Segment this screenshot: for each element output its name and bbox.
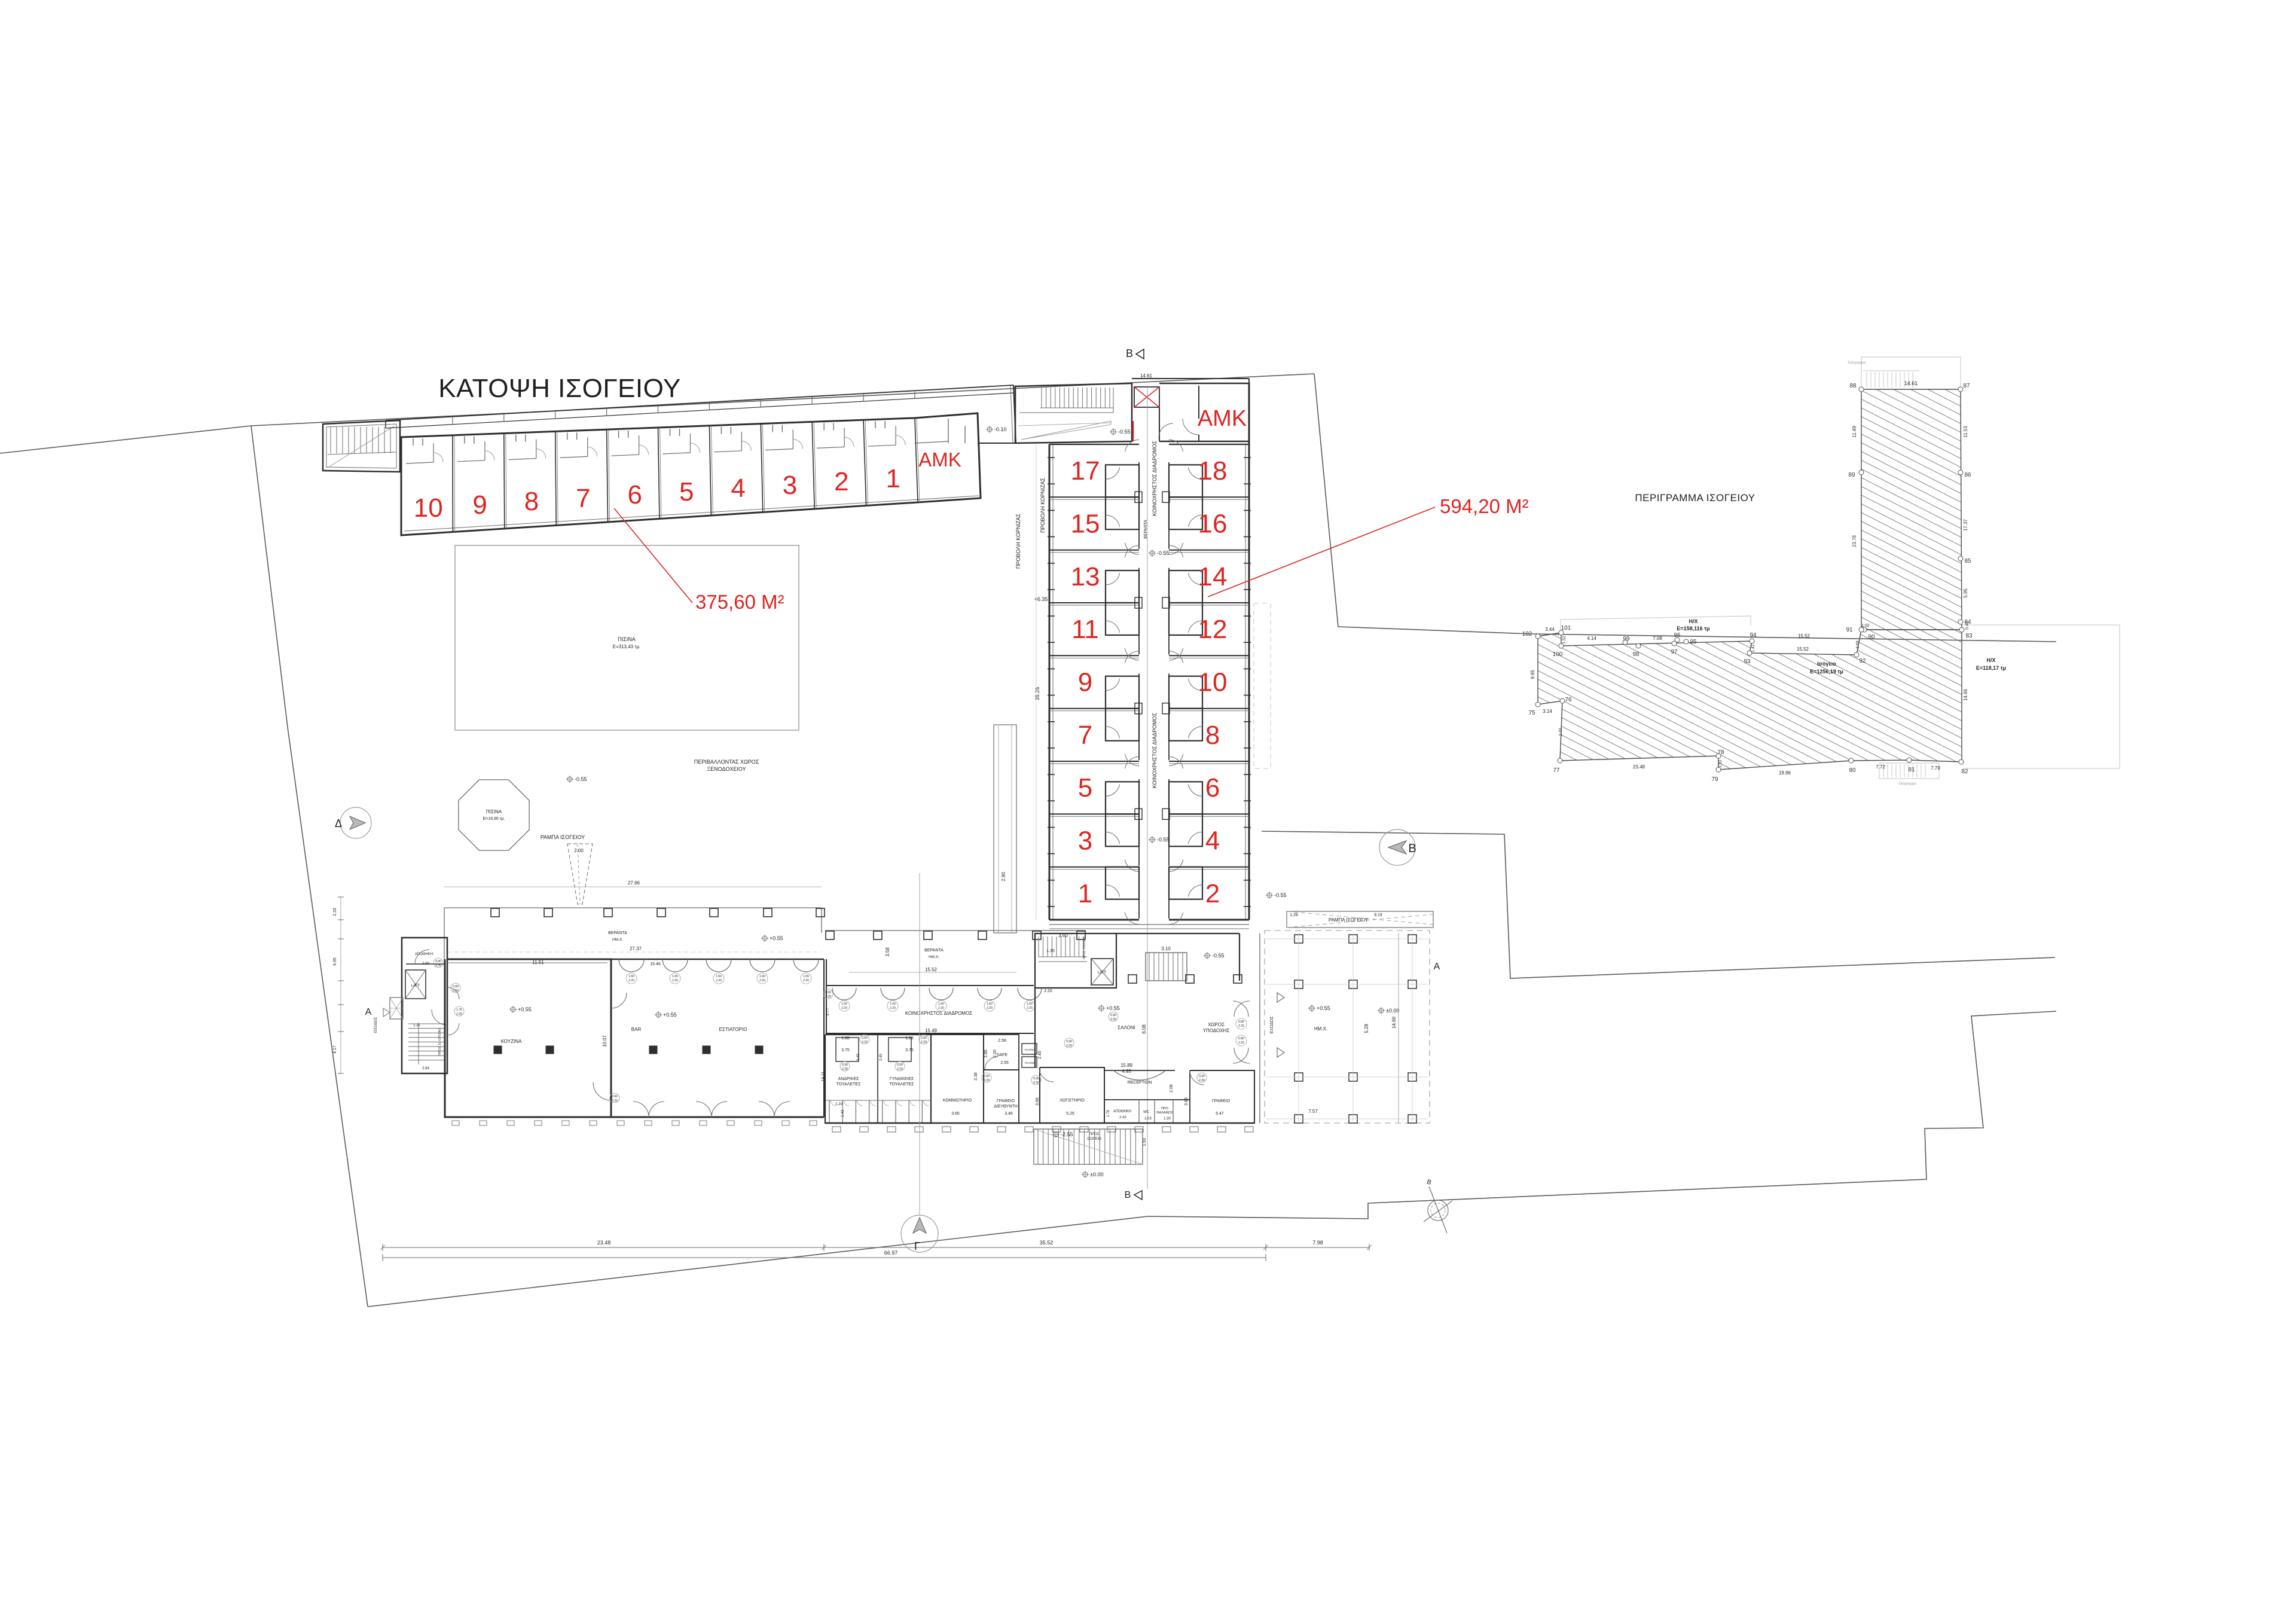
svg-text:2.20: 2.20 [842,1067,848,1071]
svg-text:Ε=19,95 τμ.: Ε=19,95 τμ. [483,817,505,821]
svg-text:3.10: 3.10 [1161,946,1171,951]
svg-text:27.66: 27.66 [628,880,640,886]
svg-text:2.20: 2.20 [993,1050,997,1058]
svg-text:8: 8 [1205,721,1220,750]
svg-text:ΗΜ.Χ.: ΗΜ.Χ. [612,938,623,942]
svg-text:35.26: 35.26 [1034,687,1040,701]
svg-text:2.20: 2.20 [1066,1044,1072,1048]
svg-text:ΚΟΜΜΩΤΗΡΙΟ: ΚΟΜΜΩΤΗΡΙΟ [943,1099,972,1103]
svg-text:102: 102 [1522,631,1532,637]
svg-text:1.41: 1.41 [1751,644,1755,652]
svg-text:-0.55: -0.55 [575,776,587,782]
svg-text:1.52: 1.52 [1562,636,1567,644]
svg-text:15.89: 15.89 [1120,1063,1133,1068]
svg-text:2.55: 2.55 [1000,1061,1009,1065]
svg-text:ΙΣΟΓΕΙΟ: ΙΣΟΓΕΙΟ [1087,1137,1101,1141]
svg-text:Ε=158,116 τμ: Ε=158,116 τμ [1677,626,1709,631]
svg-text:1.93: 1.93 [1143,1138,1147,1146]
svg-text:10.07: 10.07 [602,1035,607,1047]
svg-text:Ισόγειο: Ισόγειο [1817,661,1836,667]
svg-text:Η/Χ: Η/Χ [1689,618,1697,624]
svg-text:2.20: 2.20 [890,1006,896,1010]
svg-text:80: 80 [1849,767,1856,774]
svg-text:1.60: 1.60 [938,1002,944,1006]
svg-text:16: 16 [1198,510,1228,539]
svg-text:11.53: 11.53 [1963,426,1968,438]
svg-text:3.75: 3.75 [841,1048,850,1052]
svg-text:0.90: 0.90 [1199,1075,1205,1078]
svg-text:15.49: 15.49 [925,1028,938,1033]
svg-text:ΤΗΛ/ΝΟ: ΤΗΛ/ΝΟ [1024,1048,1035,1051]
svg-text:2.08: 2.08 [1170,1084,1174,1093]
svg-text:92: 92 [1859,658,1866,664]
svg-text:2.20: 2.20 [456,1012,462,1016]
svg-text:Σκέγραμμα: Σκέγραμμα [1898,782,1916,786]
svg-text:12: 12 [1198,615,1228,644]
svg-text:SAFE: SAFE [997,1053,1008,1057]
svg-text:2.20: 2.20 [453,989,459,993]
svg-text:Δ: Δ [335,817,342,829]
svg-text:AMK: AMK [1198,406,1247,431]
svg-text:2.20: 2.20 [612,1099,618,1103]
svg-text:ΚΟΥΖΙΝΑ: ΚΟΥΖΙΝΑ [501,1039,522,1044]
svg-text:96: 96 [1674,632,1681,639]
svg-text:19.11: 19.11 [822,1071,826,1081]
svg-text:7.72: 7.72 [1876,764,1885,770]
svg-text:11.51: 11.51 [532,960,544,965]
svg-text:2.20: 2.20 [987,1006,993,1010]
svg-text:ΚΟΙΝΟΧΡΗΣΤΟΣ ΔΙΑΔΡΟΜΟΣ: ΚΟΙΝΟΧΡΗΣΤΟΣ ΔΙΑΔΡΟΜΟΣ [1152,440,1158,516]
svg-text:98: 98 [1632,651,1639,658]
svg-text:3.60: 3.60 [1058,933,1068,938]
svg-text:ΓΡΑΦΕΙΟ: ΓΡΑΦΕΙΟ [997,1099,1015,1103]
svg-text:0.90: 0.90 [825,991,831,994]
svg-text:ΞΕΝΟΔΟΧΕΙΟΥ: ΞΕΝΟΔΟΧΕΙΟΥ [707,766,746,772]
svg-text:ΚΑΤΟΨΗ ΙΣΟΓΕΙΟΥ: ΚΑΤΟΨΗ ΙΣΟΓΕΙΟΥ [438,374,681,403]
svg-text:+0.55: +0.55 [1317,1005,1330,1011]
svg-text:0.90: 0.90 [453,985,459,989]
svg-text:Ε=313,43 τμ.: Ε=313,43 τμ. [613,644,641,649]
svg-text:14: 14 [1198,562,1228,591]
svg-text:97: 97 [1671,649,1678,655]
svg-text:ΑΝΔΡΙΚΕΣ: ΑΝΔΡΙΚΕΣ [838,1077,859,1081]
svg-text:2.20: 2.20 [1033,1081,1039,1085]
svg-text:Σκέγραμμα: Σκέγραμμα [1848,361,1865,365]
svg-text:1.60: 1.60 [672,975,678,978]
svg-text:3.38: 3.38 [974,1072,978,1081]
svg-text:0.90: 0.90 [435,960,441,963]
svg-text:2.45: 2.45 [1038,1051,1042,1059]
svg-text:2.42: 2.42 [1119,1116,1126,1119]
svg-text:ΘΑΛΑΜΟΣ: ΘΑΛΑΜΟΣ [1156,1111,1173,1115]
svg-text:-0.55: -0.55 [1212,953,1225,959]
svg-text:AMK: AMK [918,449,961,471]
svg-text:0.90: 0.90 [921,1036,927,1040]
svg-text:9.95: 9.95 [1530,670,1535,679]
svg-text:0.90: 0.90 [1033,1077,1039,1081]
svg-text:ΒΕΡΑΝΤΑ: ΒΕΡΑΝΤΑ [924,948,944,953]
svg-text:0.80: 0.80 [1238,1037,1244,1041]
svg-text:2.32: 2.32 [1559,728,1563,736]
svg-text:2.20: 2.20 [1110,1018,1116,1021]
svg-text:18: 18 [1198,456,1228,486]
svg-text:ΛΟΓΙΣΤΗΡΙΟ: ΛΟΓΙΣΤΗΡΙΟ [1060,1099,1085,1103]
svg-text:ΤΟΥΑΛΕΤΕΣ: ΤΟΥΑΛΕΤΕΣ [836,1082,861,1087]
svg-text:1.60: 1.60 [759,975,765,978]
svg-text:-0.55: -0.55 [1157,550,1170,556]
svg-text:ΠΡΟΣ ΥΠΟΓΕΙΟ: ΠΡΟΣ ΥΠΟΓΕΙΟ [1083,936,1086,959]
svg-text:35.52: 35.52 [1040,1240,1054,1246]
svg-text:1.60: 1.60 [890,1002,896,1006]
svg-text:2: 2 [1205,879,1220,908]
svg-text:1.60: 1.60 [1027,1002,1033,1006]
svg-text:9: 9 [1078,668,1092,697]
svg-text:RECEPTION: RECEPTION [1128,1081,1152,1085]
svg-text:3.44: 3.44 [1545,627,1555,632]
svg-text:5: 5 [679,477,694,507]
svg-text:3.77: 3.77 [826,1008,830,1016]
svg-text:7.57: 7.57 [1308,1109,1318,1114]
svg-text:2.20: 2.20 [1238,1024,1244,1028]
svg-text:375,60 M²: 375,60 M² [695,591,784,613]
svg-text:2.20: 2.20 [803,979,809,983]
svg-text:14.61: 14.61 [1904,380,1918,386]
svg-text:ΗΜ.Χ.: ΗΜ.Χ. [1314,1026,1327,1032]
svg-text:ΑΠΟΘΗΚΗ: ΑΠΟΘΗΚΗ [1113,1110,1131,1113]
svg-text:2.20: 2.20 [716,979,722,983]
svg-text:ΠΙΣΙΝΑ: ΠΙΣΙΝΑ [618,636,636,642]
svg-text:ΠΡΟΣ: ΠΡΟΣ [1089,1133,1100,1136]
svg-text:17: 17 [1071,456,1100,486]
svg-text:14.66: 14.66 [1963,688,1968,701]
svg-text:6: 6 [628,480,642,510]
svg-text:ΥΠΟΔΟΧΗΣ: ΥΠΟΔΟΧΗΣ [1203,1028,1230,1033]
svg-text:+0.55: +0.55 [518,1006,532,1012]
svg-text:3.65: 3.65 [951,1112,960,1116]
svg-text:1.43: 1.43 [841,1110,845,1117]
svg-text:3.58: 3.58 [885,947,890,957]
svg-text:88: 88 [1849,383,1857,389]
svg-text:2.20: 2.20 [1199,1079,1205,1082]
svg-text:0.42: 0.42 [1965,621,1970,630]
svg-text:ΠΡΟ: ΠΡΟ [1161,1107,1169,1111]
svg-text:4.17: 4.17 [333,1045,337,1054]
svg-text:11.49: 11.49 [1852,426,1857,438]
svg-text:91: 91 [1846,627,1853,633]
svg-text:9: 9 [472,490,487,520]
svg-text:1.20: 1.20 [835,1103,842,1106]
svg-text:ΠΡΟΣ 1ο ΟΡΟΦΟ: ΠΡΟΣ 1ο ΟΡΟΦΟ [438,1028,442,1055]
svg-text:15.46: 15.46 [650,962,661,966]
svg-text:85: 85 [1964,558,1971,565]
svg-text:ΤΗΛ/ΝΟ: ΤΗΛ/ΝΟ [1024,1061,1035,1064]
svg-text:5.47: 5.47 [1216,1112,1224,1116]
svg-text:ΠΙΣΙΝΑ: ΠΙΣΙΝΑ [486,809,502,814]
svg-text:87: 87 [1963,383,1970,389]
svg-text:78: 78 [1717,749,1724,756]
svg-text:ΚΟΙΝΟΧΡΗΣΤΟΣ ΔΙΑΔΡΟΜΟΣ: ΚΟΙΝΟΧΡΗΣΤΟΣ ΔΙΑΔΡΟΜΟΣ [905,1011,972,1016]
svg-text:83: 83 [1965,633,1973,639]
svg-text:ΚΟΙΝΟΧΡΗΣΤΟΣ ΔΙΑΔΡΟΜΟΣ: ΚΟΙΝΟΧΡΗΣΤΟΣ ΔΙΑΔΡΟΜΟΣ [1152,712,1158,788]
svg-text:Β: Β [1125,1190,1131,1200]
svg-text:10: 10 [1198,668,1228,697]
svg-text:15.52: 15.52 [1798,633,1810,639]
svg-text:2.20: 2.20 [672,979,678,983]
svg-text:0.90: 0.90 [984,1075,990,1078]
svg-text:-0.55: -0.55 [1118,429,1131,435]
svg-text:2.20: 2.20 [825,995,831,999]
svg-text:LIFT: LIFT [411,984,420,988]
svg-text:ΕΣΤΙΑΤΟΡΙΟ: ΕΣΤΙΑΤΟΡΙΟ [719,1027,747,1032]
svg-text:-0.55: -0.55 [1274,892,1287,898]
svg-text:1.88: 1.88 [841,1036,850,1041]
svg-text:2.20: 2.20 [862,1041,868,1044]
svg-text:7.79: 7.79 [1931,765,1940,771]
svg-text:2.20: 2.20 [984,1079,990,1082]
svg-text:ΕΞΟΔΟΣ: ΕΞΟΔΟΣ [1270,1016,1274,1033]
svg-text:3.86: 3.86 [1036,1097,1040,1106]
svg-text:0.90: 0.90 [1066,1040,1072,1044]
svg-text:2.20: 2.20 [435,964,441,968]
svg-text:1.02: 1.02 [1861,624,1870,628]
svg-text:3.69: 3.69 [1856,640,1860,649]
svg-text:1.30: 1.30 [1164,1117,1171,1121]
svg-text:3: 3 [1078,826,1092,856]
svg-text:3.75: 3.75 [905,1048,914,1052]
svg-text:±0.00: ±0.00 [1386,1008,1399,1014]
svg-text:3.14: 3.14 [1543,709,1552,714]
svg-text:3: 3 [783,471,797,500]
svg-text:9.19: 9.19 [1374,913,1382,917]
svg-text:66.97: 66.97 [884,1250,898,1256]
svg-text:A: A [365,1007,372,1017]
svg-text:5: 5 [1078,773,1092,803]
svg-text:4: 4 [1205,826,1220,856]
svg-text:0.90: 0.90 [1110,1014,1116,1017]
svg-text:100: 100 [1553,651,1563,658]
svg-text:2.20: 2.20 [897,1067,903,1071]
svg-text:1.88: 1.88 [905,1036,914,1041]
svg-text:19.96: 19.96 [1779,770,1791,776]
svg-text:0.90: 0.90 [842,1063,848,1067]
svg-text:ΗΜ.Χ.: ΗΜ.Χ. [929,955,939,959]
svg-text:2.58: 2.58 [998,1039,1006,1043]
svg-text:1.76: 1.76 [456,1008,462,1012]
svg-text:ΓΥΝΑΙΚΕΙΕΣ: ΓΥΝΑΙΚΕΙΕΣ [890,1077,914,1081]
svg-text:2.85: 2.85 [984,1050,988,1058]
svg-text:81: 81 [1908,767,1915,773]
svg-text:2.20: 2.20 [921,1041,927,1044]
svg-text:9.95: 9.95 [333,957,337,966]
svg-text:1.60: 1.60 [803,975,809,978]
svg-text:Β: Β [1126,347,1133,359]
svg-text:ΡΑΜΠΑ ΙΣΟΓΕΙΟΥ: ΡΑΜΠΑ ΙΣΟΓΕΙΟΥ [541,834,585,840]
svg-text:-0.55: -0.55 [1157,837,1170,843]
svg-text:+0.55: +0.55 [1106,1005,1120,1011]
svg-text:Ε=118,17 τμ: Ε=118,17 τμ [1976,665,2006,671]
svg-text:1.32: 1.32 [413,1024,420,1027]
svg-text:ΠΕΡΙΓΡΑΜΜΑ ΙΣΟΓΕΙΟΥ: ΠΕΡΙΓΡΑΜΜΑ ΙΣΟΓΕΙΟΥ [1635,492,1755,504]
svg-text:+0.55: +0.55 [770,935,783,941]
svg-text:2.84: 2.84 [422,1067,429,1070]
svg-text:2.20: 2.20 [1238,1041,1244,1045]
svg-text:1.35: 1.35 [1046,949,1055,953]
svg-text:Ε=1256,19 τμ: Ε=1256,19 τμ [1810,669,1843,675]
svg-text:A: A [1434,962,1440,972]
svg-text:76: 76 [1565,697,1572,703]
svg-text:2.00: 2.00 [574,848,584,853]
svg-text:0.90: 0.90 [897,1063,903,1067]
svg-text:ΔΙΕΥΘΥΝΤΗ: ΔΙΕΥΘΥΝΤΗ [994,1105,1018,1109]
svg-text:±0.00: ±0.00 [1090,1172,1103,1177]
svg-text:1: 1 [1078,879,1092,908]
svg-text:Γ: Γ [914,1240,920,1252]
svg-text:B: B [1408,842,1416,855]
svg-text:0.80: 0.80 [1238,1020,1244,1024]
svg-text:ΠΡΟΒΟΛΗ ΚΟΡΝΙΖΑΣ: ΠΡΟΒΟΛΗ ΚΟΡΝΙΖΑΣ [1040,477,1046,533]
svg-text:3.83: 3.83 [1184,1097,1189,1106]
svg-text:2.20: 2.20 [759,979,765,983]
svg-text:ΠΡΟΒΟΛΗ ΚΟΡΝΙΖΑΣ: ΠΡΟΒΟΛΗ ΚΟΡΝΙΖΑΣ [1015,513,1021,569]
svg-text:6.08: 6.08 [1141,1024,1147,1034]
svg-text:7.08: 7.08 [1653,636,1662,641]
svg-text:90: 90 [1868,634,1875,640]
svg-text:ΡΑΜΠΑ ΙΣΟΓΕΙΟΥ: ΡΑΜΠΑ ΙΣΟΓΕΙΟΥ [1329,917,1369,923]
svg-text:7.98: 7.98 [1312,1240,1323,1246]
svg-text:0.90: 0.90 [612,1095,618,1099]
svg-text:1.78: 1.78 [1107,1110,1110,1117]
svg-text:LIFT: LIFT [1098,971,1107,975]
svg-text:4.14: 4.14 [1587,636,1596,641]
svg-text:2.20: 2.20 [841,1006,847,1010]
svg-text:1.60: 1.60 [841,1002,847,1006]
svg-text:1.03: 1.03 [1144,1117,1152,1121]
svg-text:15.52: 15.52 [925,967,938,972]
svg-text:7: 7 [576,484,590,513]
svg-text:1: 1 [886,464,900,493]
svg-text:1.60: 1.60 [628,975,634,978]
svg-text:WC: WC [1143,1111,1150,1114]
svg-text:2.20: 2.20 [628,979,634,983]
svg-text:-2.55: -2.55 [1061,1131,1073,1137]
svg-text:+0.55: +0.55 [663,1012,677,1018]
svg-text:594,20 M²: 594,20 M² [1440,495,1529,517]
svg-text:-0.10: -0.10 [994,426,1007,432]
svg-text:2.90: 2.90 [1001,872,1006,881]
svg-text:89: 89 [1848,472,1855,478]
svg-text:4.95: 4.95 [1122,1069,1131,1074]
svg-text:ΕΙΣΟΔΟΣ: ΕΙΣΟΔΟΣ [374,1017,378,1033]
svg-text:1.60: 1.60 [987,1002,993,1006]
svg-text:79: 79 [1711,776,1718,783]
svg-text:23.78: 23.78 [1852,535,1857,547]
svg-text:ΣΑΛΟΝΙ: ΣΑΛΟΝΙ [1118,1025,1135,1030]
svg-text:2.20: 2.20 [938,1006,944,1010]
svg-text:2.33: 2.33 [333,908,337,916]
svg-text:77: 77 [1553,767,1560,774]
svg-text:3.45: 3.45 [880,1054,883,1061]
svg-text:86: 86 [1964,472,1971,478]
svg-text:5.95: 5.95 [1963,588,1968,598]
svg-text:0.90: 0.90 [862,1036,868,1040]
svg-text:11: 11 [1071,615,1099,644]
svg-text:ΠΕΡΙΒΑΛΛΟΝΤΑΣ ΧΩΡΟΣ: ΠΕΡΙΒΑΛΛΟΝΤΑΣ ΧΩΡΟΣ [694,759,759,765]
svg-text:BAR: BAR [631,1027,642,1032]
svg-text:6: 6 [1205,773,1220,803]
svg-text:27.37: 27.37 [630,946,642,951]
svg-text:99: 99 [1623,636,1630,642]
svg-text:1.60: 1.60 [716,975,722,978]
svg-text:75: 75 [1528,710,1535,716]
svg-text:ΤΟΥΑΛΕΤΕΣ: ΤΟΥΑΛΕΤΕΣ [890,1082,914,1087]
svg-text:2.20: 2.20 [1044,989,1052,993]
svg-text:8: 8 [524,487,539,516]
svg-text:14.60: 14.60 [1391,1016,1397,1029]
svg-text:82: 82 [1961,768,1968,775]
svg-text:17.37: 17.37 [1963,518,1968,531]
svg-text:4: 4 [731,474,745,503]
svg-text:10: 10 [414,493,443,523]
svg-text:2: 2 [834,467,848,496]
svg-text:15.52: 15.52 [1797,646,1809,652]
svg-text:3.45: 3.45 [857,1054,860,1061]
svg-text:13: 13 [1071,562,1100,591]
svg-text:94: 94 [1750,632,1757,639]
svg-text:1.28: 1.28 [1290,913,1298,917]
svg-text:1.51: 1.51 [1718,759,1723,768]
svg-text:5.25: 5.25 [1066,1112,1074,1116]
svg-text:14.61: 14.61 [1140,373,1153,379]
svg-text:23.48: 23.48 [1633,764,1645,770]
svg-text:ΧΩΡΟΣ: ΧΩΡΟΣ [1208,1022,1225,1027]
svg-text:3.46: 3.46 [1004,1112,1013,1116]
svg-text:ΒΕΡΑΝΤΑ: ΒΕΡΑΝΤΑ [608,931,627,935]
svg-text:93: 93 [1744,658,1751,665]
svg-text:15: 15 [1071,510,1100,539]
svg-text:ΓΡΑΦΕΙΟ: ΓΡΑΦΕΙΟ [1212,1099,1231,1103]
svg-text:5.28: 5.28 [1364,1024,1369,1033]
svg-text:95: 95 [1690,639,1697,645]
svg-text:Η/Χ: Η/Χ [1986,657,1995,663]
svg-text:101: 101 [1561,625,1571,631]
svg-text:7: 7 [1078,721,1092,750]
svg-text:23.48: 23.48 [597,1240,611,1246]
svg-text:2.20: 2.20 [1027,1006,1033,1010]
